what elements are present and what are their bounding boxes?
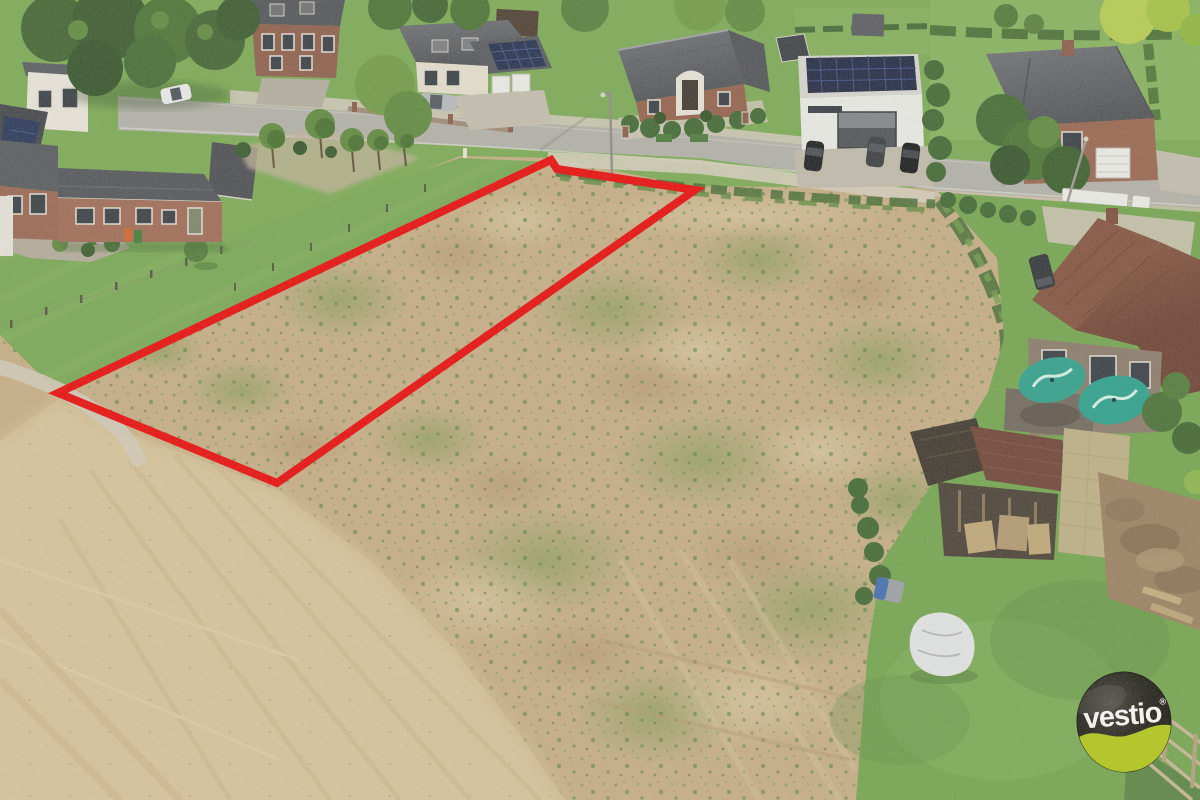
photo-grain-overlay: [0, 0, 1200, 800]
aerial-photo: vestio ®: [0, 0, 1200, 800]
aerial-photo-canvas: vestio ®: [0, 0, 1200, 800]
